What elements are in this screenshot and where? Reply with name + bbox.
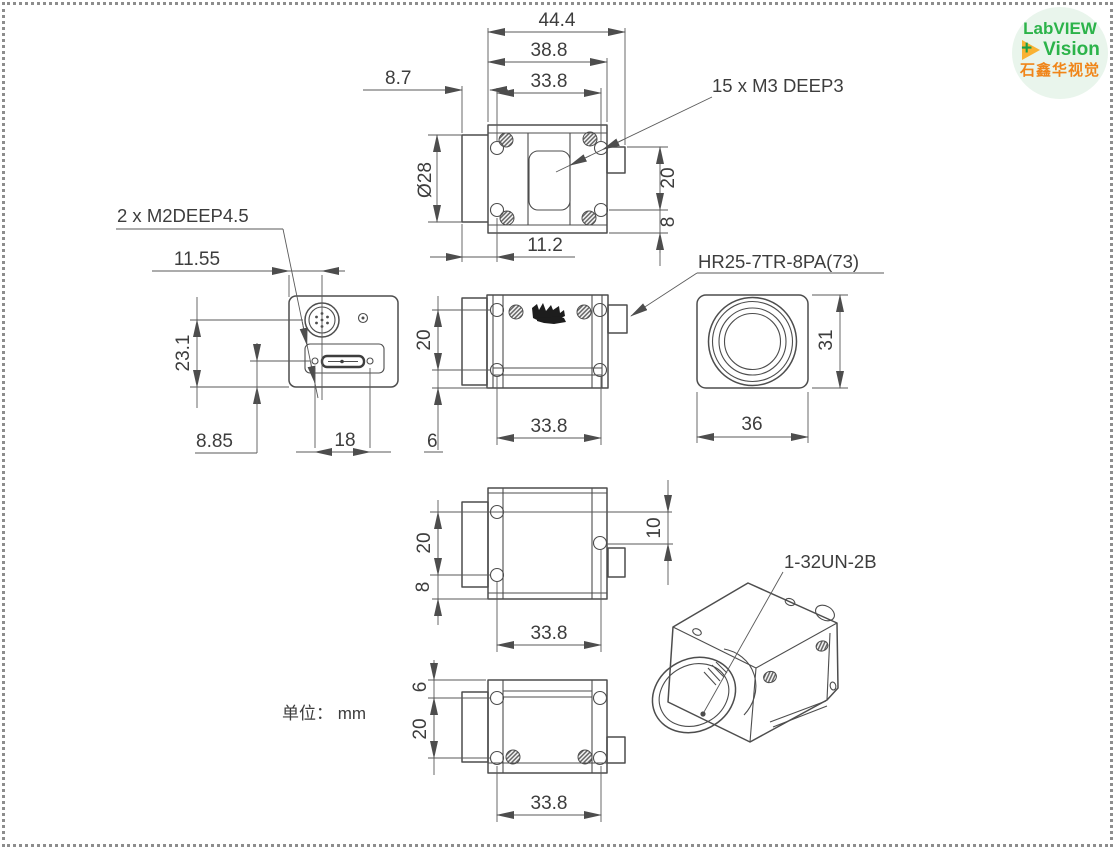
led-indicator: [359, 314, 368, 323]
dim-front-height: 31: [816, 329, 837, 350]
panel-screw-right: [367, 358, 373, 364]
iso-side-screw: [762, 670, 778, 685]
iso-back-hole: [829, 682, 836, 691]
lens-flange-bottom: [462, 692, 488, 762]
top-view-dimensions: 44.4 38.8 33.8 8.7 Ø28: [363, 10, 679, 266]
top-view-holes: [491, 142, 608, 217]
callout-lens-thread: 1-32UN-2B: [700, 551, 876, 717]
front-view: 31 36: [697, 295, 848, 443]
dim-side2-edge: 8: [413, 582, 434, 593]
usb-port: [322, 356, 364, 367]
dim-side-edge: 6: [427, 431, 438, 452]
dim-back-conn-offset: 11.55: [174, 249, 220, 270]
callout-hr25: HR25-7TR-8PA(73): [631, 251, 884, 316]
lens-flange-side2: [462, 502, 488, 587]
dim-top-edge: 8: [658, 217, 679, 228]
dim-bottom-hole-span: 33.8: [531, 793, 568, 814]
dim-side2-hole-span: 33.8: [531, 623, 568, 644]
side-view: 20 6 33.8 HR25-7TR-8PA(73): [414, 251, 884, 452]
side-screw-left: [509, 305, 523, 319]
callout-hr25-text: HR25-7TR-8PA(73): [698, 251, 859, 272]
lens-flange-side: [462, 298, 487, 385]
iso-lens-rim: [639, 643, 749, 747]
dim-top-body: 38.8: [531, 40, 568, 61]
bottom-screw-left: [506, 750, 520, 764]
connector-bottom: [607, 737, 625, 763]
back-view: 2 x M2DEEP4.5 11.55 23.1: [116, 205, 398, 453]
tripod-slot: [529, 151, 570, 210]
dim-back-conn-height: 23.1: [173, 335, 194, 372]
connector-top: [607, 147, 625, 173]
side-view-2: 20 8 10 33.8: [413, 480, 673, 652]
brand-marking: [532, 303, 566, 324]
dim-bottom-hole-pitch: 20: [410, 718, 431, 739]
top-view-screws: [499, 132, 597, 225]
dim-side-hole-span: 33.8: [531, 416, 568, 437]
side-view-dimensions: 20 6 33.8: [414, 296, 601, 452]
top-view: 44.4 38.8 33.8 8.7 Ø28: [363, 10, 844, 266]
connector-side: [608, 305, 627, 333]
connector-side2: [608, 548, 625, 577]
dim-back-usb-offset: 8.85: [196, 431, 233, 452]
dim-top-overall: 44.4: [539, 10, 576, 31]
dim-top-holes: 33.8: [531, 71, 568, 92]
callout-lens-thread-text: 1-32UN-2B: [784, 551, 877, 572]
iso-flange-hole: [692, 627, 703, 636]
dim-side-hole-pitch: 20: [414, 329, 435, 350]
dim-side2-hole-pitch: 20: [414, 532, 435, 553]
iso-lens-base: [724, 649, 756, 715]
bottom-screw-right: [578, 750, 592, 764]
dim-top-front: 11.2: [527, 235, 563, 256]
side-view2-body: [488, 488, 607, 599]
back-view-dimensions: 11.55 23.1 8.85 18: [152, 249, 391, 453]
dim-top-lens-protrusion: 8.7: [385, 68, 411, 89]
dim-side2-conn-offset: 10: [644, 517, 665, 538]
lens-mount-ring: [709, 298, 797, 386]
iso-back-screw: [815, 639, 830, 653]
front-view-body: [697, 295, 808, 388]
iso-body-outline: [668, 583, 838, 742]
side-screw-right: [577, 305, 591, 319]
callout-m3-screws: 15 x M3 DEEP3: [556, 75, 844, 172]
dim-top-lens-dia: Ø28: [415, 162, 436, 198]
dim-back-screw-pitch: 18: [334, 430, 355, 451]
callout-m3-text: 15 x M3 DEEP3: [712, 75, 844, 96]
callout-m2-screws: 2 x M2DEEP4.5: [116, 205, 318, 398]
dim-top-conn: 20: [658, 167, 679, 188]
bottom-view: 6 20 33.8: [410, 660, 625, 822]
drawing-page: LabVIEW + Vision 石鑫华视觉: [0, 0, 1115, 849]
camera-dimension-drawing: 44.4 38.8 33.8 8.7 Ø28: [0, 0, 1115, 849]
lens-barrel-top: [462, 135, 488, 222]
isometric-view: 1-32UN-2B: [639, 551, 876, 747]
dim-bottom-edge: 6: [410, 682, 431, 693]
callout-m2-text: 2 x M2DEEP4.5: [117, 205, 249, 226]
dim-front-width: 36: [741, 414, 762, 435]
side-view2-dimensions: 20 8 10 33.8: [413, 480, 673, 652]
leader-dot: [700, 711, 705, 716]
bottom-view-dimensions: 6 20 33.8: [410, 660, 601, 822]
panel-screw-left: [312, 358, 318, 364]
side-view2-holes: [491, 506, 607, 582]
unit-note: 单位： mm: [282, 704, 366, 723]
